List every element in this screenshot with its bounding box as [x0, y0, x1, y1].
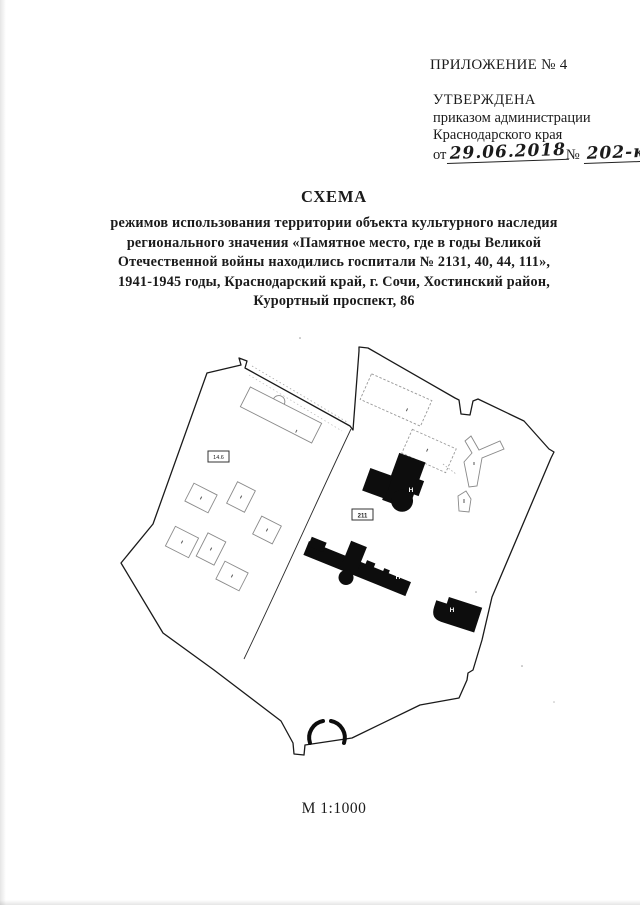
appendix-number: ПРИЛОЖЕНИЕ № 4: [430, 57, 568, 74]
site-plan-svg: 14.6 211: [100, 332, 560, 772]
road-dotted-line-1: [252, 366, 347, 422]
right-parcel-building-rect1: [360, 374, 432, 426]
scan-speck: [299, 337, 301, 339]
left-parcel-building-c: [165, 526, 198, 557]
left-parcel-number-label: 14.6: [213, 455, 224, 461]
road-dotted-line-2: [249, 375, 342, 431]
approval-number-handwritten: 202-кн: [583, 144, 640, 164]
parcel-divider-line: [244, 429, 351, 659]
approval-by-line1: приказом администрации: [433, 110, 633, 128]
y-shaped-building-outline: [464, 436, 504, 487]
entrance-arc-left: [309, 721, 323, 743]
center-parcel-number-label: 211: [358, 514, 368, 520]
left-parcel-number-box: 14.6: [208, 451, 229, 462]
left-parcel-building-b: [227, 482, 256, 512]
title-line-4: 1941-1945 годы, Краснодарский край, г. С…: [72, 273, 596, 293]
approval-stamp: УТВЕРЖДЕНА приказом администрации Красно…: [433, 92, 633, 164]
map-scale: М 1:1000: [72, 800, 596, 818]
scan-speck: [475, 591, 477, 593]
left-parcel-building-d: [196, 533, 226, 565]
document-title: СХЕМА: [72, 187, 596, 207]
title-line-3: Отечественной войны находились госпитали…: [72, 253, 596, 273]
black-building-middle-label: Н: [396, 574, 401, 581]
title-line-1: режимов использования территории объекта…: [72, 214, 596, 234]
scan-speck: [521, 665, 523, 667]
approval-approved: УТВЕРЖДЕНА: [433, 92, 633, 110]
site-plan-map: 14.6 211: [100, 332, 560, 772]
black-building-top-label: Н: [409, 487, 414, 494]
scanned-document-page: ПРИЛОЖЕНИЕ № 4 УТВЕРЖДЕНА приказом админ…: [0, 0, 640, 905]
title-line-5: Курортный проспект, 86: [72, 292, 596, 312]
date-prefix: от: [433, 147, 446, 165]
center-parcel-number-box: 211: [352, 509, 373, 520]
left-parcel-building-e: [253, 516, 282, 544]
scan-speck: [553, 701, 555, 703]
left-parcel-building-f: [216, 561, 248, 591]
black-building-middle: [299, 526, 417, 608]
black-building-bottom: [430, 594, 482, 633]
left-parcel-long-building: [240, 382, 324, 443]
approval-date-handwritten: 29.06.2018: [447, 143, 570, 164]
left-parcel-building-a: [185, 483, 217, 513]
title-line-2: регионального значения «Памятное место, …: [72, 234, 596, 254]
document-title-block: СХЕМА режимов использования территории о…: [72, 187, 596, 312]
black-building-bottom-label: Н: [450, 607, 455, 614]
approval-date-row: от 29.06.2018 № 202-кн: [433, 147, 633, 165]
